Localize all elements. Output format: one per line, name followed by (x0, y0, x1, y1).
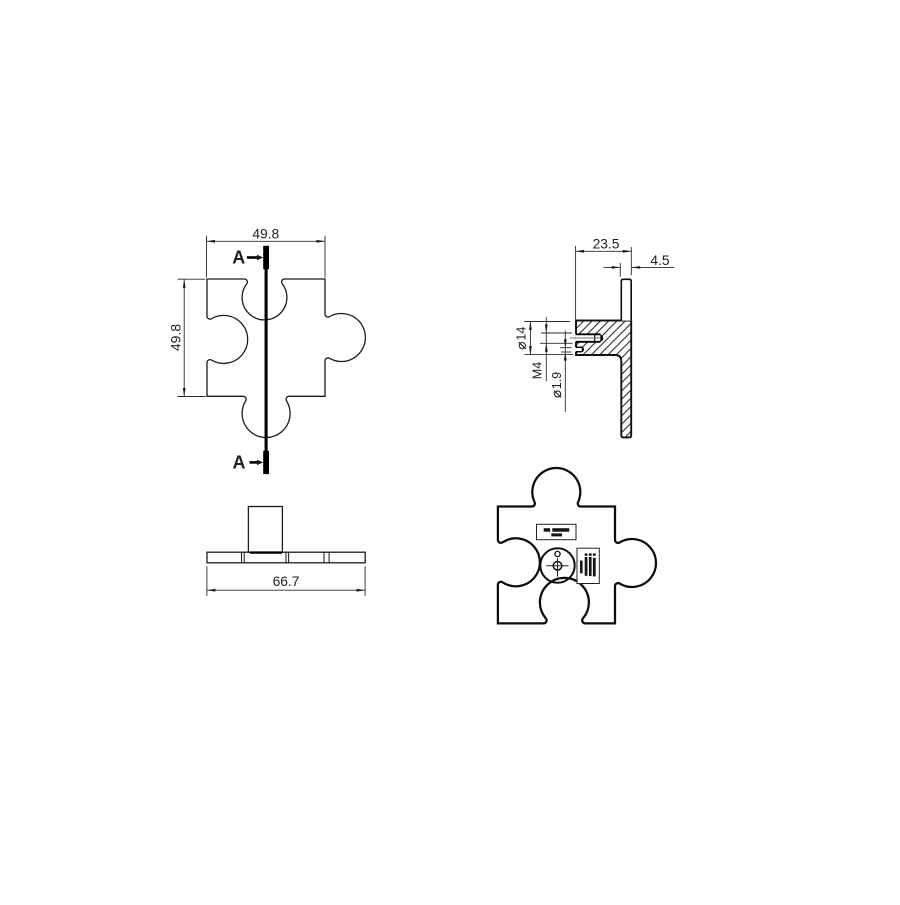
svg-text:4.5: 4.5 (650, 253, 670, 268)
svg-text:M4: M4 (531, 362, 545, 379)
svg-text:A: A (233, 453, 246, 473)
svg-text:49.8: 49.8 (252, 227, 279, 242)
svg-text:66.7: 66.7 (273, 574, 300, 589)
svg-text:A: A (232, 248, 245, 268)
svg-text:14: 14 (515, 327, 529, 341)
svg-text:23.5: 23.5 (593, 236, 620, 251)
svg-text:1.9: 1.9 (550, 372, 564, 389)
svg-text:49.8: 49.8 (167, 324, 183, 351)
